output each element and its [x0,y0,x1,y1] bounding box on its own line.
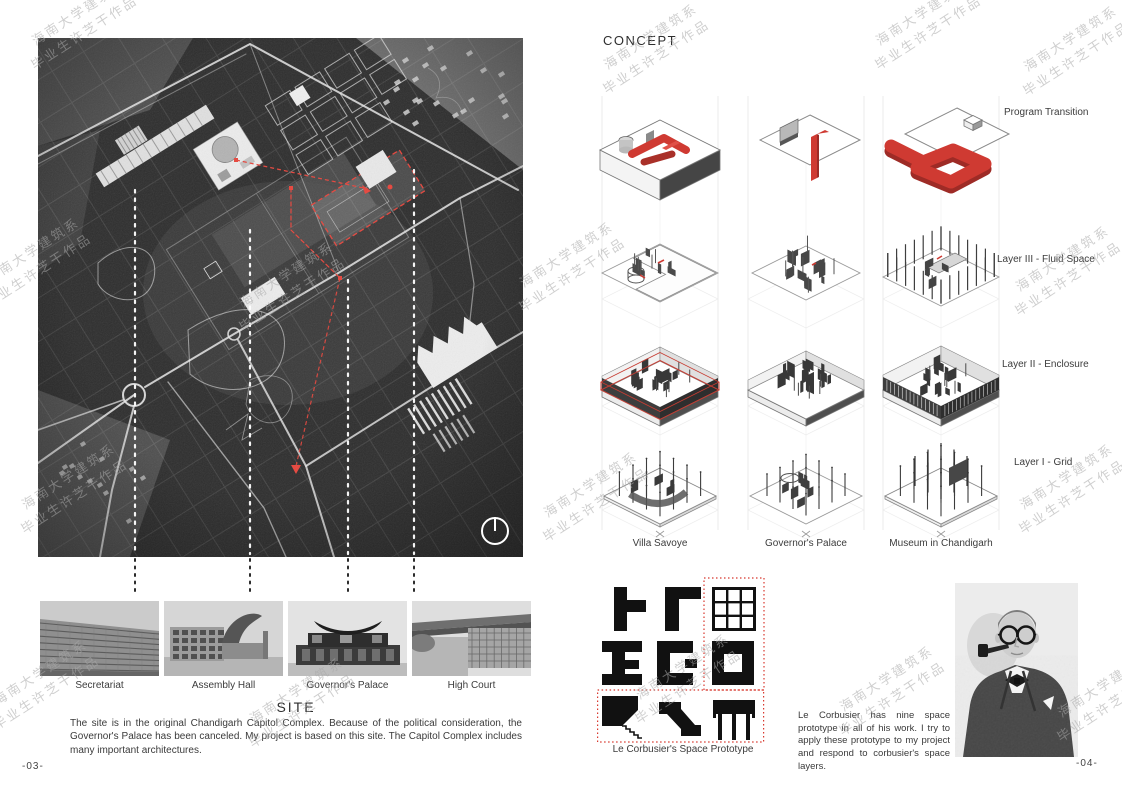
page-number-right: -04- [1076,758,1098,769]
layer-label-fluid-space: Layer III - Fluid Space [997,254,1095,265]
glyph-stairs [602,696,642,738]
column-label-museum-chandigarh: Museum in Chandigarh [871,538,1011,549]
glyph-ramp [659,702,701,736]
glyph-grid [714,589,755,630]
prototype-caption: Le Corbusier's Space Prototype [592,744,774,755]
portfolio-spread: { "watermark": { "line1": "海南大学建筑系", "li… [0,0,1122,793]
layer-label-program-transition: Program Transition [1004,107,1088,118]
layer-label-enclosure: Layer II - Enclosure [1002,359,1089,370]
column-label-governors-palace: Governor's Palace [736,538,876,549]
photo-governors-palace [288,601,407,676]
site-description: The site is in the original Chandigarh C… [70,717,522,757]
photo-high-court [412,601,531,676]
layer-label-grid: Layer I - Grid [1014,457,1072,468]
glyph-gamma [665,587,701,631]
photo-label-assembly-hall: Assembly Hall [164,680,283,691]
column-label-villa-savoye: Villa Savoye [590,538,730,549]
glyph-tee [614,587,646,631]
prototype-panel [597,577,769,745]
corbusier-description: Le Corbusier has nine space prototype in… [798,710,950,773]
photo-label-governors-palace: Governor's Palace [288,680,407,691]
glyph-piloti-table [713,700,755,740]
photo-leader-lines [0,0,560,600]
site-section-title: SITE [70,699,522,715]
le-corbusier-photo [955,583,1078,757]
page-number-left: -03- [22,761,44,772]
glyph-donut [712,641,754,685]
photo-label-secretariat: Secretariat [40,680,159,691]
photo-label-high-court: High Court [412,680,531,691]
glyph-c-court [657,641,697,685]
photo-assembly-hall [164,601,283,676]
glyph-eye-beam [602,641,642,685]
photo-secretariat [40,601,159,676]
